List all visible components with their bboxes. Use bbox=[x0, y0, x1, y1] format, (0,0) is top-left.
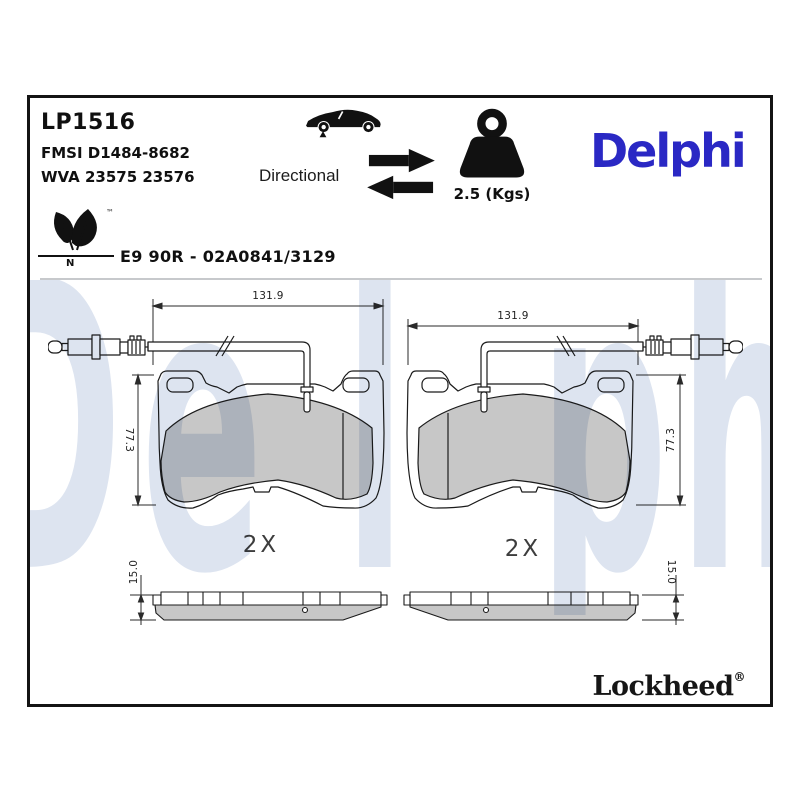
lockheed-logo-text: Lockheed bbox=[592, 671, 733, 702]
pad-front-view-right bbox=[403, 328, 743, 518]
quantity-label-right: 2X bbox=[491, 536, 555, 562]
registered-mark: ® bbox=[734, 670, 746, 684]
pad-side-view-right bbox=[403, 589, 640, 623]
height-dimension-right: 77.3 bbox=[665, 425, 677, 455]
width-dimension-left: 131.9 bbox=[243, 290, 293, 302]
thickness-dimension-left: 15.0 bbox=[128, 557, 140, 587]
quantity-label-left: 2X bbox=[229, 532, 293, 558]
lockheed-logo: Lockheed® bbox=[592, 670, 745, 702]
width-dimension-right: 131.9 bbox=[488, 310, 538, 322]
datasheet-page: LP1516 FMSI D1484-8682 WVA 23575 23576 D… bbox=[0, 0, 800, 800]
thickness-dimension-right: 15.0 bbox=[665, 557, 677, 587]
pad-side-view-left bbox=[151, 589, 388, 623]
pad-front-view-left bbox=[48, 328, 388, 518]
height-dimension-left: 77.3 bbox=[123, 425, 135, 455]
datasheet-frame: LP1516 FMSI D1484-8682 WVA 23575 23576 D… bbox=[27, 95, 773, 707]
